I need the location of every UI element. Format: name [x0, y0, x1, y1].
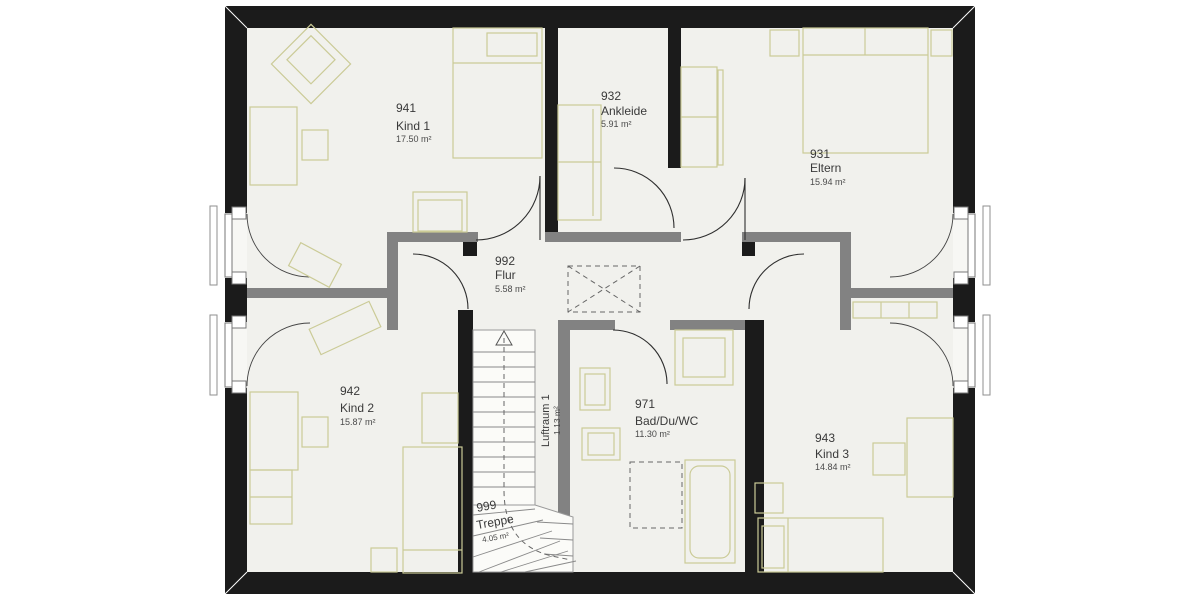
floor-plan-canvas: 941 Kind 1 17.50 m² 932 Ankleide 5.91 m²…	[0, 0, 1200, 600]
svg-text:Ankleide: Ankleide	[601, 104, 647, 118]
window-sill	[210, 315, 217, 395]
svg-text:Luftraum 1: Luftraum 1	[540, 394, 552, 447]
svg-text:Eltern: Eltern	[810, 161, 841, 175]
svg-text:Flur: Flur	[495, 268, 516, 282]
svg-text:971: 971	[635, 397, 655, 411]
svg-text:992: 992	[495, 254, 515, 268]
svg-text:15.87 m²: 15.87 m²	[340, 417, 376, 427]
svg-text:5.91 m²: 5.91 m²	[601, 119, 632, 129]
svg-text:Kind 3: Kind 3	[815, 447, 849, 461]
svg-text:11.30 m²: 11.30 m²	[635, 429, 670, 439]
svg-text:941: 941	[396, 101, 416, 115]
svg-text:943: 943	[815, 431, 835, 445]
window-sill	[983, 315, 990, 395]
svg-text:17.50 m²: 17.50 m²	[396, 134, 432, 144]
svg-text:932: 932	[601, 89, 621, 103]
window-sill	[210, 206, 217, 285]
svg-text:Kind 2: Kind 2	[340, 401, 374, 415]
svg-text:14.84 m²: 14.84 m²	[815, 462, 851, 472]
svg-text:5.58 m²: 5.58 m²	[495, 284, 526, 294]
svg-text:931: 931	[810, 147, 830, 161]
svg-text:1.13 m²: 1.13 m²	[552, 406, 562, 435]
svg-text:942: 942	[340, 384, 360, 398]
floor-plan-svg: 941 Kind 1 17.50 m² 932 Ankleide 5.91 m²…	[0, 0, 1200, 600]
svg-text:Kind 1: Kind 1	[396, 119, 430, 133]
svg-text:15.94 m²: 15.94 m²	[810, 177, 846, 187]
svg-text:Bad/Du/WC: Bad/Du/WC	[635, 414, 699, 428]
window-sill	[983, 206, 990, 285]
